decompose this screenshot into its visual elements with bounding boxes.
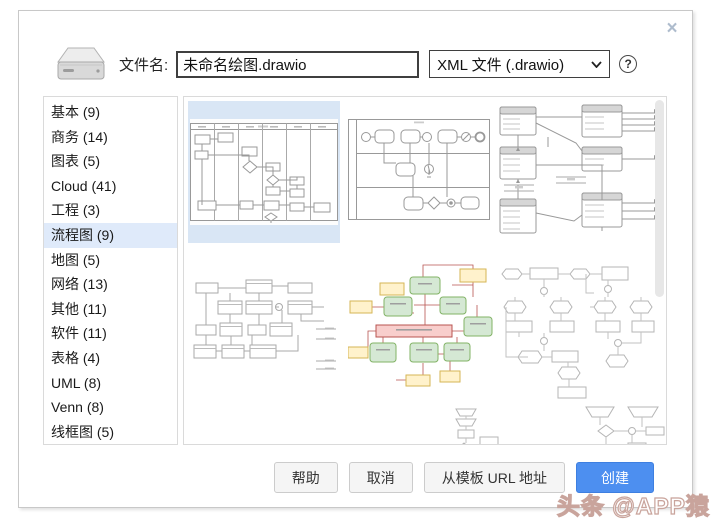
- filename-input[interactable]: [176, 51, 419, 78]
- template-partial-1[interactable]: [420, 407, 510, 445]
- sidebar-item-wireframe[interactable]: 线框图 (5): [44, 420, 177, 445]
- sidebar-item-flowchart[interactable]: 流程图 (9): [44, 223, 177, 248]
- er-preview-image: [490, 103, 662, 237]
- partial-preview-2: [572, 403, 667, 445]
- watermark-text: 头条 @APP猿: [557, 487, 710, 521]
- new-file-dialog: × 文件名: XML 文件 (.drawio) ? 基本 (9) 商务 (14)…: [18, 10, 693, 508]
- sidebar-item-venn[interactable]: Venn (8): [44, 395, 177, 420]
- cancel-button[interactable]: 取消: [349, 462, 413, 493]
- sidebar-item-cloud[interactable]: Cloud (41): [44, 174, 177, 199]
- colored-preview-image: [348, 257, 498, 403]
- template-er-diagram[interactable]: [490, 103, 666, 243]
- disk-icon: [55, 45, 107, 83]
- template-swimlane-flowchart[interactable]: [188, 101, 340, 243]
- category-sidebar: 基本 (9) 商务 (14) 图表 (5) Cloud (41) 工程 (3) …: [43, 96, 178, 445]
- template-data-flow[interactable]: [188, 265, 346, 397]
- sidebar-item-network[interactable]: 网络 (13): [44, 272, 177, 297]
- template-colored-context[interactable]: [348, 257, 500, 405]
- gallery-scrollbar[interactable]: [655, 100, 664, 297]
- template-bpmn-pool[interactable]: [344, 109, 496, 237]
- template-partial-2[interactable]: [572, 403, 667, 445]
- data-flow-preview-image: [188, 265, 340, 389]
- sidebar-item-business[interactable]: 商务 (14): [44, 125, 177, 150]
- filename-label: 文件名:: [119, 54, 168, 75]
- sidebar-item-uml[interactable]: UML (8): [44, 371, 177, 396]
- dialog-header: 文件名: XML 文件 (.drawio) ?: [19, 39, 692, 89]
- close-icon[interactable]: ×: [662, 19, 682, 39]
- template-gallery: [183, 96, 667, 445]
- filetype-select[interactable]: XML 文件 (.drawio): [429, 50, 610, 78]
- bpmn-preview-image: [344, 109, 494, 227]
- help-icon[interactable]: ?: [619, 55, 637, 73]
- partial-preview-1: [420, 407, 508, 445]
- sidebar-item-software[interactable]: 软件 (11): [44, 321, 177, 346]
- chevron-down-icon: [591, 61, 602, 68]
- sidebar-item-other[interactable]: 其他 (11): [44, 297, 177, 322]
- sidebar-item-engineering[interactable]: 工程 (3): [44, 198, 177, 223]
- from-template-url-button[interactable]: 从模板 URL 地址: [424, 462, 565, 493]
- filetype-value: XML 文件 (.drawio): [437, 54, 564, 75]
- sidebar-item-basic[interactable]: 基本 (9): [44, 100, 177, 125]
- sidebar-item-tables[interactable]: 表格 (4): [44, 346, 177, 371]
- sidebar-item-maps[interactable]: 地图 (5): [44, 248, 177, 273]
- template-hexagon-flowchart[interactable]: [498, 263, 666, 403]
- swimlane-preview-image: [190, 119, 338, 225]
- hexagon-preview-image: [498, 263, 664, 401]
- help-button[interactable]: 帮助: [274, 462, 338, 493]
- sidebar-item-charts[interactable]: 图表 (5): [44, 149, 177, 174]
